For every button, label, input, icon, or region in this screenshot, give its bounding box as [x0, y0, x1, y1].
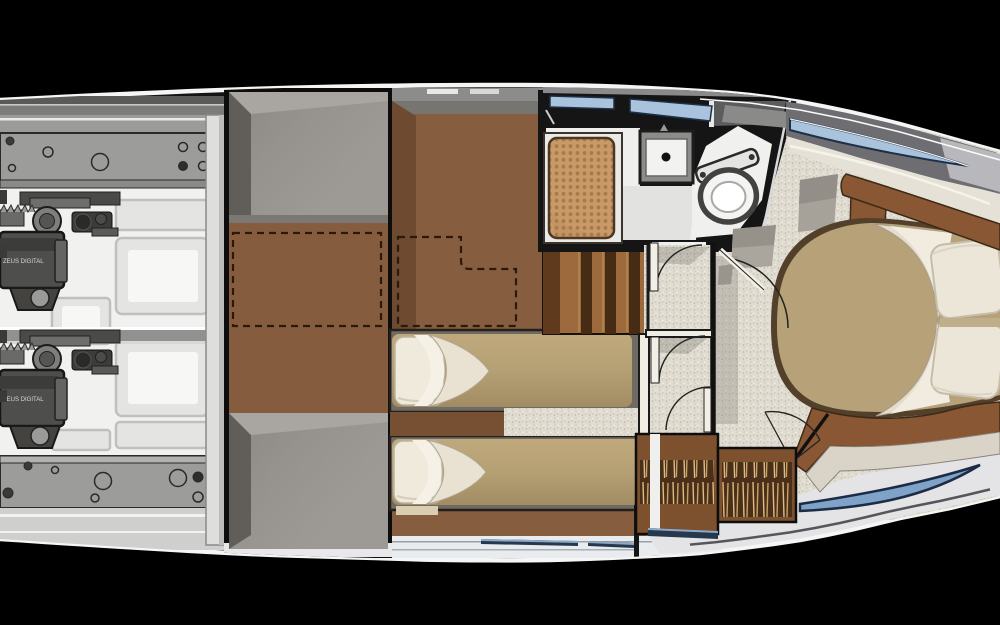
- svg-text:ZEUS DIGITAL: ZEUS DIGITAL: [3, 259, 44, 265]
- svg-text:ZEUS DIGITAL: ZEUS DIGITAL: [3, 397, 44, 403]
